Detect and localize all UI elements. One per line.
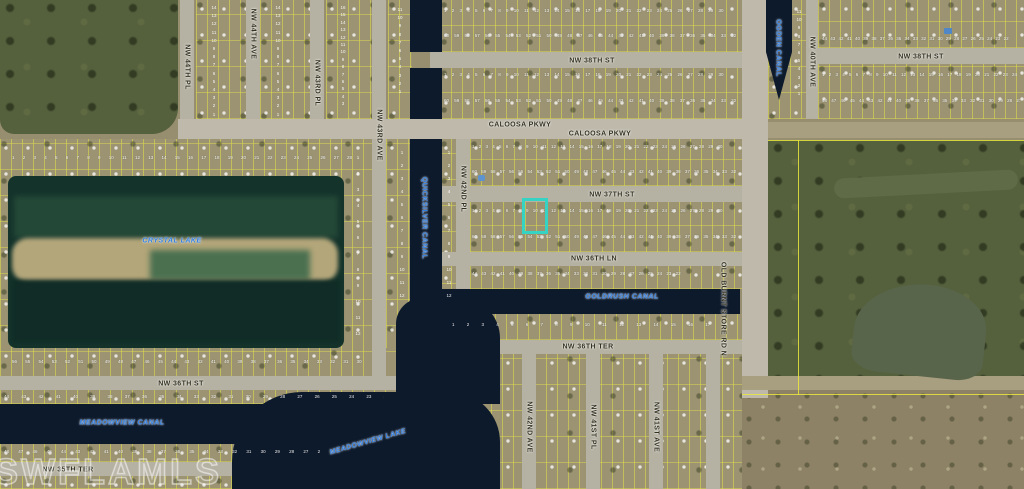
block-a2 [260, 0, 310, 119]
lot-row-1: 1 2 3 4 5 6 7 8 9 10 11 12 13 14 15 16 1… [444, 8, 740, 15]
road-old-burnt-store [742, 0, 768, 398]
label-nw-41st-pl: NW 41ST PL [590, 404, 597, 449]
highlight-parcel[interactable] [522, 198, 548, 234]
label-caloosa-pkwy-1: CALOOSA PKWY [489, 122, 552, 129]
lot-row-14: 1 2 3 4 5 6 7 8 9 10 11 12 13 14 15 16 1… [12, 155, 364, 162]
crystal-deep [12, 280, 340, 342]
lot-row-15: 56 55 54 53 52 51 50 49 48 47 46 45 44 4… [12, 359, 364, 366]
block-a3 [326, 0, 372, 119]
lot-row-3: 1 2 3 4 5 6 7 8 9 10 11 12 13 14 15 16 1… [444, 72, 740, 79]
lot-row-9: 44 43 42 41 40 39 38 37 36 35 34 33 32 3… [472, 271, 740, 278]
label-nw-40th-ave: NW 40TH AVE [809, 37, 816, 88]
lot-row-10: 1 2 3 4 5 6 7 8 9 10 11 12 13 14 15 16 1… [452, 322, 740, 329]
road-nw-42nd-pl [456, 139, 470, 300]
boundary-line-v [798, 140, 799, 395]
lot-col-1: 14 13 12 11 10 9 8 7 6 5 4 3 2 1 [208, 4, 220, 119]
label-nw-36th-ter: NW 36TH TER [562, 344, 613, 351]
lot-col-7: 11 10 9 8 7 6 5 4 3 2 1 [793, 8, 805, 98]
label-meadowview-canal: MEADOWVIEW CANAL [80, 420, 165, 427]
label-nw-42nd-ave: NW 42ND AVE [526, 401, 533, 452]
lot-row-7: 1 2 3 4 5 6 7 8 9 10 11 12 13 14 15 16 1… [472, 208, 740, 215]
road-nw-43rd-ave-north [372, 0, 386, 119]
label-nw-36th-st: NW 36TH ST [158, 381, 204, 388]
label-nw-37th-st: NW 37TH ST [589, 192, 635, 199]
canal-quicksilver-n1 [410, 0, 442, 52]
lot-row-13: 48 47 46 45 44 43 42 41 40 39 38 37 36 3… [822, 98, 1020, 105]
lot-col-2: 14 13 12 11 10 9 8 7 6 5 4 3 2 1 [272, 4, 284, 119]
canal-quicksilver-n2 [410, 68, 442, 119]
block-loop [480, 354, 742, 489]
label-nw-38th-st-right: NW 38TH ST [898, 54, 944, 61]
label-crystal-lake: CRYSTAL LAKE [142, 238, 201, 245]
label-ogden-canal: OGDEN CANAL [775, 19, 782, 77]
lot-row-4: 60 59 58 57 56 55 54 53 52 51 50 49 48 4… [444, 98, 740, 105]
road-caloosa-pkwy [178, 119, 768, 139]
lot-col-8: 1 2 3 4 5 6 7 8 9 10 11 12 [352, 150, 364, 342]
lot-row-2: 60 59 58 57 56 55 54 53 52 51 50 49 48 4… [444, 33, 740, 40]
lot-col-3: 16 15 14 13 12 11 10 9 8 7 6 5 4 3 [337, 4, 349, 108]
boundary-line-h2 [768, 140, 1024, 141]
lot-row-6: 60 59 58 57 56 55 54 53 52 51 50 49 48 4… [472, 169, 740, 176]
water-junction [396, 298, 500, 404]
label-caloosa-pkwy-2: CALOOSA PKWY [569, 131, 632, 138]
label-goldrush-canal: GOLDRUSH CANAL [585, 294, 659, 301]
crystal-band [14, 196, 338, 238]
scrub-southeast [742, 390, 1024, 489]
mls-watermark: SWFLAMLS [0, 451, 222, 489]
lot-col-6: 1 2 3 4 5 6 7 8 9 10 11 12 [396, 146, 408, 302]
label-nw-38th-st-center: NW 38TH ST [569, 58, 615, 65]
dirt-track-south [742, 376, 1024, 390]
boundary-line-h1 [742, 394, 1024, 395]
block-a1 [196, 0, 246, 119]
label-nw-43rd-ave: NW 43RD AVE [376, 109, 383, 160]
label-nw-44th-ave: NW 44TH AVE [250, 9, 257, 60]
lot-row-16: 44 43 42 41 40 39 38 37 36 35 34 33 32 3… [4, 394, 384, 401]
label-nw-41st-ave: NW 41ST AVE [653, 402, 660, 452]
label-nw-42nd-pl: NW 42ND PL [460, 166, 467, 212]
lot-col-5: 1 2 3 4 5 6 7 8 9 10 11 12 [443, 146, 455, 302]
road-loop-east [706, 354, 720, 489]
label-nw-44th-pl: NW 44TH PL [184, 44, 191, 90]
label-quicksilver-canal: QUICKSILVER CANAL [421, 177, 428, 259]
label-nw-43rd-pl: NW 43RD PL [314, 60, 321, 106]
label-nw-36th-ln: NW 36TH LN [571, 256, 617, 263]
blueroof-dot [944, 28, 952, 34]
label-old-burnt-store: OLD BURNT STORE RD N [720, 262, 727, 356]
lot-row-11: 44 43 42 41 40 39 38 37 36 35 34 33 32 3… [822, 36, 1020, 43]
lot-col-4: 11 10 9 8 7 6 5 4 3 2 1 [394, 6, 406, 96]
lot-row-8: 60 59 58 57 56 55 54 53 52 51 50 49 48 4… [472, 234, 740, 241]
dirt-track-north [768, 122, 1024, 138]
lot-row-5: 1 2 3 4 5 6 7 8 9 10 11 12 13 14 15 16 1… [472, 144, 740, 151]
road-nw-43rd-ave [372, 139, 386, 376]
map-canvas[interactable]: 1 2 3 4 5 6 7 8 9 10 11 12 13 14 15 16 1… [0, 0, 1024, 489]
lot-row-12: 1 2 3 4 5 6 7 8 9 10 11 12 13 14 15 16 1… [822, 72, 1020, 79]
woodland-northwest [0, 0, 178, 134]
crystal-sandbar-green [150, 250, 310, 280]
